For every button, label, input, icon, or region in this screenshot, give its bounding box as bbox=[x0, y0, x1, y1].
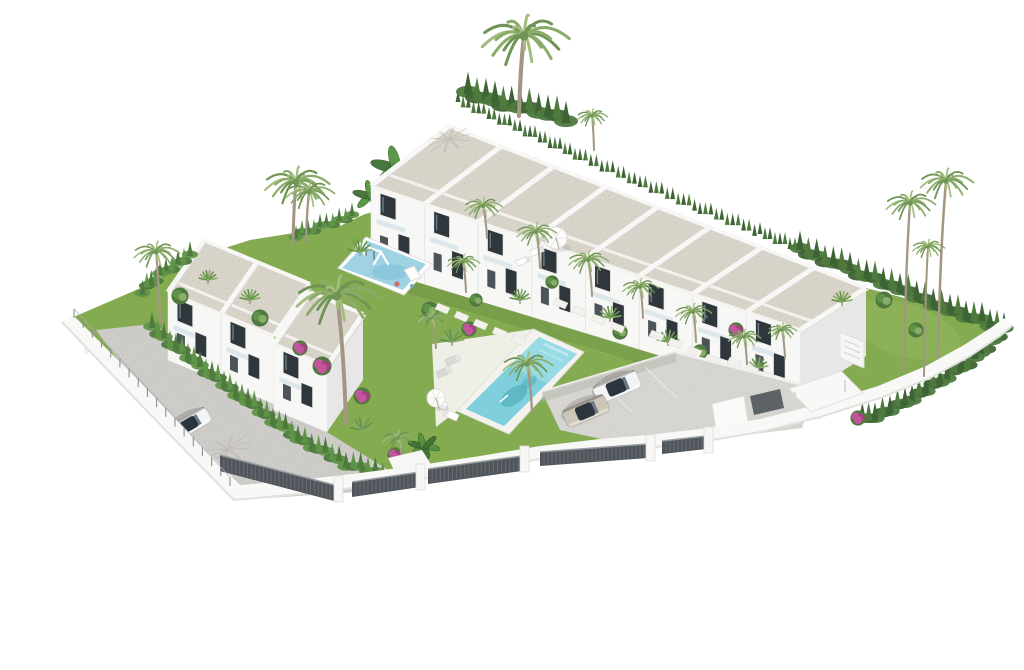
shrub bbox=[875, 291, 892, 308]
ground-floor-window bbox=[487, 269, 495, 289]
wall-pillar bbox=[334, 476, 343, 502]
ground-floor-door bbox=[248, 353, 260, 380]
architectural-render-stage bbox=[0, 0, 1024, 670]
residential-complex-render bbox=[0, 0, 1024, 670]
ground-floor-door bbox=[773, 353, 785, 379]
shrub bbox=[171, 287, 188, 304]
ground-floor-window bbox=[434, 252, 442, 272]
play-ball bbox=[410, 284, 414, 288]
wall-pillar bbox=[520, 446, 529, 472]
hedge bbox=[456, 72, 578, 128]
playground-floor-shade bbox=[372, 264, 408, 280]
wall-pillar bbox=[416, 464, 425, 490]
shrub bbox=[908, 322, 923, 337]
bougainvillea-bush bbox=[353, 387, 370, 404]
ground-floor-door bbox=[301, 382, 313, 408]
ground-floor-door bbox=[195, 331, 207, 358]
wall-pillar bbox=[704, 427, 713, 453]
wall-pillar bbox=[646, 435, 655, 461]
bougainvillea-bush bbox=[850, 410, 865, 425]
bougainvillea-bush bbox=[292, 340, 307, 355]
spring-rider bbox=[394, 281, 399, 286]
shrub bbox=[469, 293, 482, 306]
ground-floor-window bbox=[541, 286, 549, 306]
shrub bbox=[545, 275, 558, 288]
bougainvillea-bush bbox=[313, 357, 332, 376]
shrub bbox=[251, 309, 268, 326]
palm-tree bbox=[578, 109, 608, 150]
